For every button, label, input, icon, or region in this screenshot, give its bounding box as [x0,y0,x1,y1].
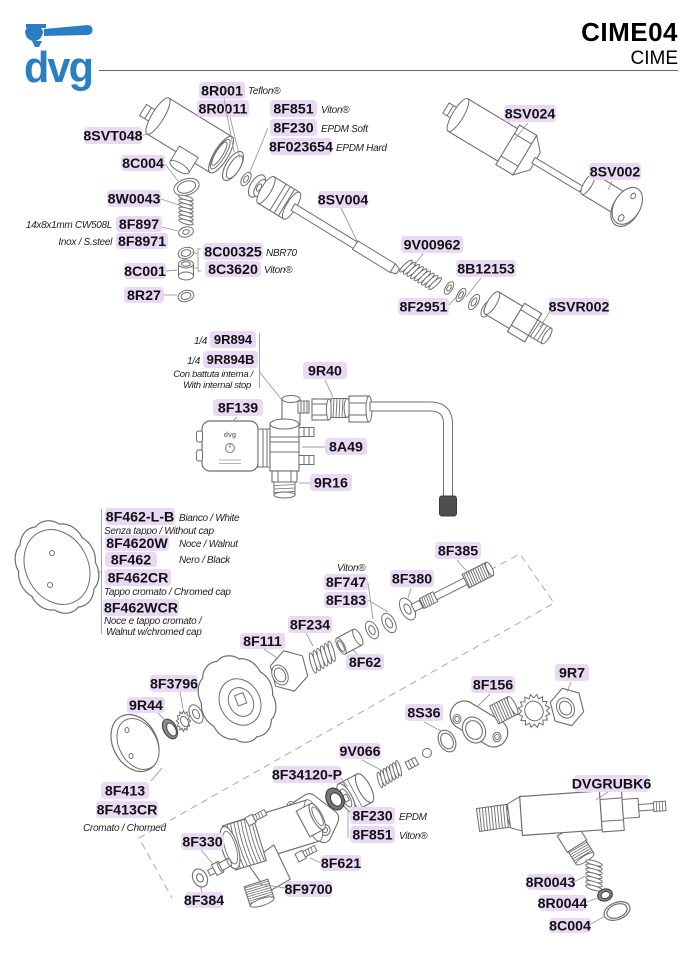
svg-text:8F34120-P: 8F34120-P [272,768,342,784]
svg-text:8F230: 8F230 [352,809,392,825]
svg-text:Inox / S.steel: Inox / S.steel [58,237,113,248]
svg-text:8F62: 8F62 [349,655,381,671]
svg-text:8F2951: 8F2951 [399,300,447,316]
svg-text:9R894B: 9R894B [207,352,255,367]
svg-text:8F4620W: 8F4620W [106,536,168,552]
svg-text:8F234: 8F234 [290,618,330,634]
svg-text:1/4: 1/4 [194,336,208,347]
svg-text:9R16: 9R16 [314,476,348,492]
svg-text:8SVT048: 8SVT048 [83,129,142,145]
svg-text:NBR70: NBR70 [266,248,297,259]
svg-text:8F183: 8F183 [326,593,366,609]
svg-text:Noce / Walnut: Noce / Walnut [179,539,239,550]
svg-text:9R894: 9R894 [214,332,253,347]
svg-text:8F384: 8F384 [184,893,224,909]
svg-text:Viton®: Viton® [399,831,428,842]
svg-text:8C3620: 8C3620 [208,262,258,278]
svg-text:CIME04: CIME04 [581,17,678,47]
svg-text:Teflon®: Teflon® [248,86,281,97]
svg-text:8F897: 8F897 [119,217,159,233]
svg-text:DVGRUBK6: DVGRUBK6 [572,777,652,793]
svg-text:8R27: 8R27 [127,288,161,304]
svg-text:8R0011: 8R0011 [199,102,248,118]
svg-text:EPDM Hard: EPDM Hard [336,143,387,154]
svg-text:EPDM: EPDM [399,812,428,823]
svg-text:Viton®: Viton® [264,265,293,276]
svg-text:EPDM Soft: EPDM Soft [321,124,369,135]
svg-text:dvg: dvg [224,432,236,439]
svg-text:8C004: 8C004 [122,156,164,172]
svg-text:8SV004: 8SV004 [318,193,369,209]
svg-text:8R0043: 8R0043 [526,875,576,891]
svg-text:14x8x1mm CW508L: 14x8x1mm CW508L [26,220,112,231]
svg-text:8F8971: 8F8971 [118,234,166,250]
svg-text:dvg: dvg [24,43,92,92]
svg-text:Viton®: Viton® [321,105,350,116]
svg-text:Walnut w/chromed cap: Walnut w/chromed cap [106,627,202,638]
svg-text:8F413CR: 8F413CR [97,803,158,819]
svg-text:8F747: 8F747 [326,575,366,591]
svg-text:With internal stop: With internal stop [183,380,251,391]
svg-text:8F023654: 8F023654 [269,140,333,156]
svg-text:8F230: 8F230 [273,121,313,137]
svg-text:Cromato / Chormed: Cromato / Chormed [83,823,166,834]
svg-text:8F3796: 8F3796 [150,677,198,693]
svg-text:Viton®: Viton® [337,563,366,574]
svg-text:9V00962: 9V00962 [404,238,461,254]
svg-text:8F156: 8F156 [473,678,513,694]
svg-text:9R40: 9R40 [308,364,342,380]
svg-text:8F621: 8F621 [321,856,361,872]
svg-text:8R001: 8R001 [201,84,243,100]
svg-text:8A49: 8A49 [329,440,363,456]
svg-text:8S36: 8S36 [407,706,440,722]
svg-text:Noce e tappo cromato /: Noce e tappo cromato / [104,616,203,627]
svg-text:8F139: 8F139 [218,401,258,417]
svg-text:8F380: 8F380 [392,572,432,588]
svg-text:8C004: 8C004 [549,919,591,935]
svg-text:Bianco / White: Bianco / White [179,513,240,524]
svg-text:8F385: 8F385 [438,544,478,560]
svg-text:CIME: CIME [631,48,679,69]
svg-text:1/4: 1/4 [187,356,201,367]
svg-text:8SVR002: 8SVR002 [549,300,610,316]
svg-text:Tappo cromato / Chromed cap: Tappo cromato / Chromed cap [104,587,231,598]
svg-text:8C001: 8C001 [124,264,166,280]
svg-text:8F462: 8F462 [111,553,151,569]
svg-text:8SV024: 8SV024 [505,107,556,123]
svg-text:Nero / Black: Nero / Black [179,555,231,566]
svg-text:8F111: 8F111 [243,634,282,650]
svg-text:8R0044: 8R0044 [538,896,588,912]
svg-text:9R44: 9R44 [129,698,163,714]
svg-text:8W0043: 8W0043 [108,192,161,208]
svg-text:9V066: 9V066 [339,744,380,760]
svg-text:8B12153: 8B12153 [457,262,515,278]
svg-text:8SV002: 8SV002 [590,165,641,181]
svg-text:8C00325: 8C00325 [204,245,262,261]
svg-text:8F330: 8F330 [182,835,222,851]
svg-text:8F462WCR: 8F462WCR [104,601,178,617]
svg-text:8F462-L-B: 8F462-L-B [106,510,175,526]
svg-text:8F851: 8F851 [352,828,392,844]
svg-text:9R7: 9R7 [559,666,585,682]
svg-text:8F9700: 8F9700 [284,882,332,898]
svg-text:Con battuta interna /: Con battuta interna / [173,369,254,380]
svg-text:8F413: 8F413 [105,784,145,800]
svg-text:8F851: 8F851 [273,102,313,118]
svg-text:8F462CR: 8F462CR [108,571,169,587]
